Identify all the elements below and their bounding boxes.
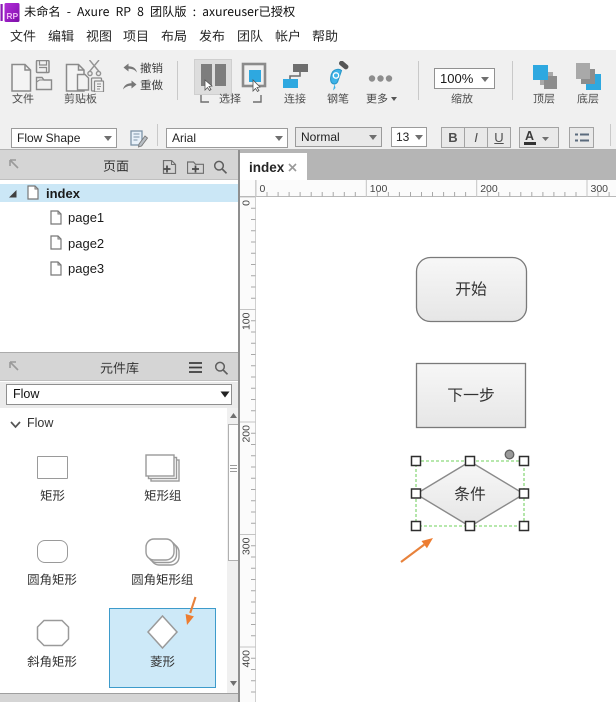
svg-text:0: 0 bbox=[260, 183, 266, 195]
svg-text:RP: RP bbox=[6, 11, 18, 21]
svg-text:200: 200 bbox=[241, 425, 253, 443]
svg-text:400: 400 bbox=[241, 650, 253, 668]
svg-text:300: 300 bbox=[241, 537, 253, 555]
svg-text:0: 0 bbox=[241, 200, 253, 206]
svg-text:200: 200 bbox=[480, 183, 498, 195]
svg-text:100: 100 bbox=[241, 312, 253, 330]
svg-text:300: 300 bbox=[591, 183, 609, 195]
svg-text:100: 100 bbox=[370, 183, 388, 195]
